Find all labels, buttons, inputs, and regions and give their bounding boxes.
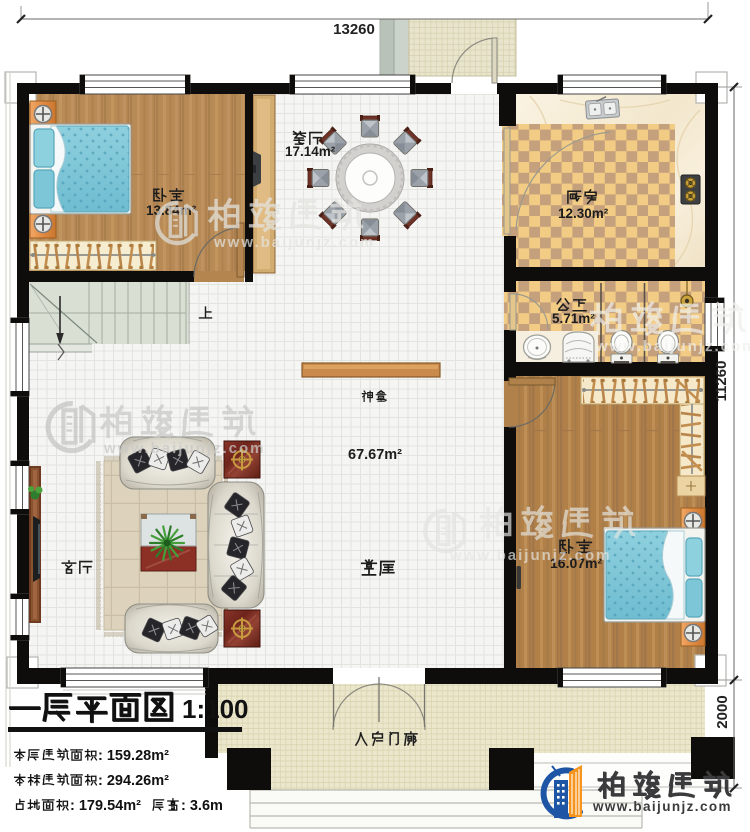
svg-text:www.baijunjz.com: www.baijunjz.com bbox=[592, 799, 732, 814]
svg-text:12.30m²: 12.30m² bbox=[558, 206, 609, 221]
svg-text:: 3.6m: : 3.6m bbox=[181, 798, 223, 814]
svg-text:: 179.54m²: : 179.54m² bbox=[70, 798, 141, 814]
svg-text:2000: 2000 bbox=[714, 695, 731, 728]
svg-text:5.71m²: 5.71m² bbox=[552, 311, 595, 326]
svg-text:www.baijunjz.com: www.baijunjz.com bbox=[213, 234, 375, 251]
svg-text:www.baijunjz.com: www.baijunjz.com bbox=[449, 547, 611, 564]
svg-text:67.67m²: 67.67m² bbox=[348, 447, 402, 463]
svg-text:www.baijunjz.com: www.baijunjz.com bbox=[103, 440, 265, 457]
svg-text:: 294.26m²: : 294.26m² bbox=[98, 773, 169, 789]
svg-text:1:100: 1:100 bbox=[182, 694, 249, 724]
svg-text:17.14m²: 17.14m² bbox=[285, 144, 336, 159]
svg-text:13260: 13260 bbox=[333, 21, 375, 38]
svg-text:: 159.28m²: : 159.28m² bbox=[98, 748, 169, 764]
svg-text:11260: 11260 bbox=[713, 361, 730, 402]
svg-text:www.baijunjz.com: www.baijunjz.com bbox=[595, 338, 750, 355]
